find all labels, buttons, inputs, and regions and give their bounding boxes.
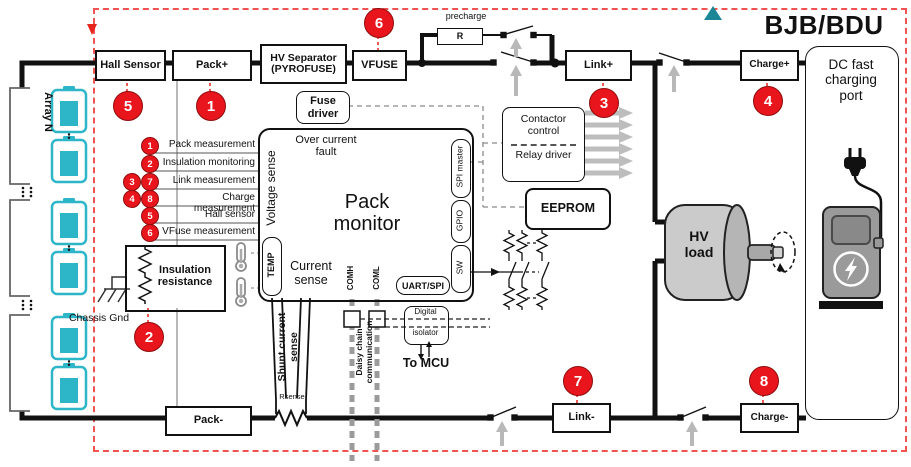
- legend-num: 3: [129, 177, 134, 188]
- legend-circle-8: 8: [141, 190, 159, 208]
- daisy-chain-label: Daisy chain communication: [353, 312, 377, 392]
- legend-num: 6: [147, 228, 152, 239]
- legend-label-pack-measurement: Pack measurement: [150, 139, 255, 150]
- marker-1: 1: [196, 91, 226, 121]
- page-title: BJB/BDU: [748, 10, 900, 41]
- marker-4-num: 4: [764, 93, 772, 110]
- junction-dot: [551, 59, 560, 68]
- hv-separator-label: HV Separator (PYROFUSE): [262, 53, 345, 76]
- voltage-sense-label: Voltage sense: [264, 132, 280, 244]
- current-sense-label: Current sense: [281, 257, 341, 289]
- comh-label: COMH: [345, 260, 357, 296]
- rsense-label: Rsense: [270, 392, 314, 402]
- gpio-label: GPIO: [454, 203, 467, 239]
- marker-7-num: 7: [574, 373, 582, 390]
- legend-circle-6: 6: [141, 224, 159, 242]
- fuse-driver-label: Fuse driver: [303, 95, 343, 119]
- charge-plus-label: Charge+: [749, 60, 789, 71]
- legend-circle-2: 2: [141, 155, 159, 173]
- legend-label-hall-sensor: Hall sensor: [150, 209, 255, 220]
- link-minus-block: Link-: [552, 403, 611, 433]
- marker-5-num: 5: [124, 98, 132, 115]
- marker-5: 5: [113, 91, 143, 121]
- chassis-gnd-label: Chassis Gnd: [68, 304, 130, 334]
- digital-isolator-label-bottom: isolator: [405, 329, 446, 338]
- contactor-control-block: Contactor control Relay driver: [502, 107, 585, 182]
- dc-port-label: DC fast charging port: [815, 54, 887, 106]
- link-minus-label: Link-: [568, 412, 594, 424]
- legend-circle-5: 5: [141, 207, 159, 225]
- coml-label: COML: [371, 260, 383, 296]
- legend-label-vfuse-measurement: VFuse measurement: [150, 226, 255, 237]
- to-mcu-label: To MCU: [396, 355, 456, 370]
- marker-8-num: 8: [760, 373, 768, 390]
- precharge-resistor-block: R: [437, 28, 483, 45]
- legend-circle-4: 4: [123, 190, 141, 208]
- hv-load-label: HV load: [676, 226, 722, 264]
- hv-separator-block: HV Separator (PYROFUSE): [260, 44, 347, 84]
- legend-circle-1: 1: [141, 137, 159, 155]
- legend-circle-7: 7: [141, 173, 159, 191]
- charge-minus-block: Charge-: [740, 403, 799, 433]
- legend-circle-3: 3: [123, 173, 141, 191]
- digital-isolator-label-top: Digital: [405, 308, 446, 317]
- charge-minus-label: Charge-: [751, 413, 789, 424]
- legend-label-insulation-monitoring: Insulation monitoring: [150, 157, 255, 168]
- marker-7: 7: [563, 366, 593, 396]
- marker-2-num: 2: [145, 329, 153, 346]
- precharge-label: precharge: [437, 10, 495, 22]
- temp-label: TEMP: [264, 240, 278, 290]
- vfuse-block: VFUSE: [352, 50, 407, 81]
- legend-num: 8: [147, 194, 152, 205]
- divider: [511, 144, 576, 146]
- legend-num: 2: [147, 159, 152, 170]
- junction-dot: [418, 59, 426, 67]
- relay-driver-label: Relay driver: [505, 149, 582, 163]
- marker-4: 4: [753, 86, 783, 116]
- eeprom-label: EEPROM: [541, 202, 595, 216]
- marker-3: 3: [589, 88, 619, 118]
- relay-driver-arrow-icons: [585, 107, 633, 179]
- vfuse-label: VFUSE: [361, 60, 398, 72]
- uart-spi-label: UART/SPI: [402, 281, 444, 291]
- pack-minus-block: Pack-: [165, 406, 252, 436]
- legend-num: 1: [147, 141, 152, 152]
- border-arrow-icon: [87, 24, 97, 35]
- pack-minus-label: Pack-: [194, 415, 223, 427]
- pack-plus-label: Pack+: [196, 60, 228, 72]
- link-plus-block: Link+: [565, 50, 632, 81]
- rsense-resistor-icon: [275, 411, 307, 425]
- marker-1-num: 1: [207, 98, 215, 115]
- hall-sensor-block: Hall Sensor: [95, 50, 166, 81]
- over-current-fault-label: Over current fault: [284, 133, 368, 159]
- eeprom-block: EEPROM: [525, 188, 611, 230]
- legend-num: 4: [129, 194, 134, 205]
- shunt-current-sense-label: Shunt current sense: [282, 298, 296, 396]
- marker-triangle-icon: [704, 6, 722, 20]
- uart-spi-pin: UART/SPI: [396, 276, 450, 295]
- insulation-resistance-label: Insulation resistance: [152, 257, 218, 295]
- marker-3-num: 3: [600, 95, 608, 112]
- hall-sensor-label: Hall Sensor: [100, 60, 161, 72]
- bjb-bdu-diagram: BJB/BDU: [0, 0, 911, 467]
- precharge-resistor-label: R: [457, 32, 464, 42]
- marker-2: 2: [134, 322, 164, 352]
- marker-6: 6: [364, 8, 394, 38]
- marker-8: 8: [749, 366, 779, 396]
- contactor-control-label: Contactor control: [505, 113, 582, 139]
- sw-sense-network: [469, 230, 549, 310]
- link-plus-label: Link+: [584, 60, 613, 72]
- marker-6-num: 6: [375, 15, 383, 32]
- fuse-driver-block: Fuse driver: [296, 91, 350, 124]
- legend-num: 5: [147, 211, 152, 222]
- legend-label-link-measurement: Link measurement: [160, 175, 255, 186]
- sw-label: SW: [454, 248, 467, 288]
- legend-num: 7: [147, 177, 152, 188]
- array-n-label: Array N: [41, 81, 55, 143]
- pack-monitor-title: Pack monitor: [312, 189, 422, 237]
- charge-plus-block: Charge+: [740, 50, 799, 81]
- spi-master-label: SPI master: [454, 141, 467, 193]
- pack-plus-block: Pack+: [172, 50, 252, 81]
